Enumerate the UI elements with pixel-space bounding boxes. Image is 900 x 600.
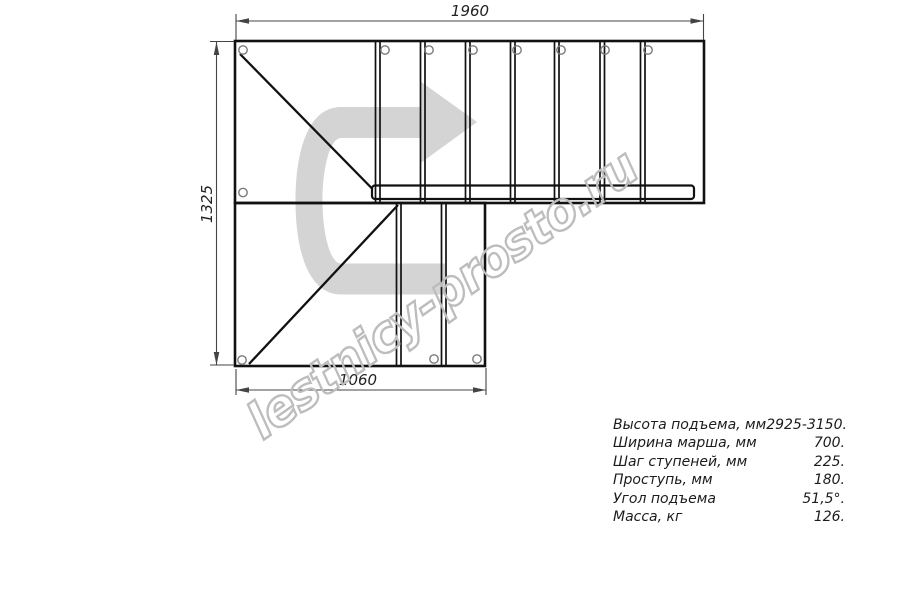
dimension-left-height-label: 1325 <box>198 185 216 223</box>
spec-row: Высота подъема, мм 2925-3150. <box>613 416 845 434</box>
spec-label: Ширина марша, мм <box>613 434 757 452</box>
hole-icon <box>381 46 389 54</box>
spec-row: Ширина марша, мм 700. <box>613 434 845 452</box>
dim-arrow-left-icon <box>236 387 249 393</box>
hole-icon <box>473 355 481 363</box>
spec-value: 180. <box>814 471 845 489</box>
dim-arrow-left-icon <box>236 18 249 24</box>
hole-icon <box>425 46 433 54</box>
hole-icon <box>239 46 247 54</box>
hole-icon <box>238 356 246 364</box>
spec-row: Проступь, мм 180. <box>613 471 845 489</box>
dimension-top-width-label: 1960 <box>451 2 489 20</box>
dim-arrow-right-icon <box>691 18 704 24</box>
hole-icon <box>430 355 438 363</box>
spec-row: Масса, кг 126. <box>613 508 845 526</box>
staircase-drawing-page: 1960 1325 1060 lestnicy-prosto.ru Высота… <box>0 0 900 600</box>
spec-label: Шаг ступеней, мм <box>613 453 747 471</box>
spec-row: Угол подъема 51,5°. <box>613 490 845 508</box>
spec-value: 225. <box>814 453 845 471</box>
spec-value: 2925-3150. <box>766 416 847 434</box>
spec-label: Угол подъема <box>613 490 716 508</box>
spec-label: Проступь, мм <box>613 471 713 489</box>
hole-icon <box>557 46 565 54</box>
dim-arrow-down-icon <box>214 352 220 365</box>
spec-label: Масса, кг <box>613 508 682 526</box>
spec-row: Шаг ступеней, мм 225. <box>613 453 845 471</box>
hole-icon <box>513 46 521 54</box>
spec-table: Высота подъема, мм 2925-3150. Ширина мар… <box>613 416 845 526</box>
spec-value: 51,5°. <box>802 490 845 508</box>
spec-label: Высота подъема, мм <box>613 416 766 434</box>
hole-icon <box>239 188 247 196</box>
dim-arrow-right-icon <box>473 387 486 393</box>
dim-arrow-up-icon <box>214 42 220 55</box>
spec-value: 126. <box>814 508 845 526</box>
spec-value: 700. <box>814 434 845 452</box>
